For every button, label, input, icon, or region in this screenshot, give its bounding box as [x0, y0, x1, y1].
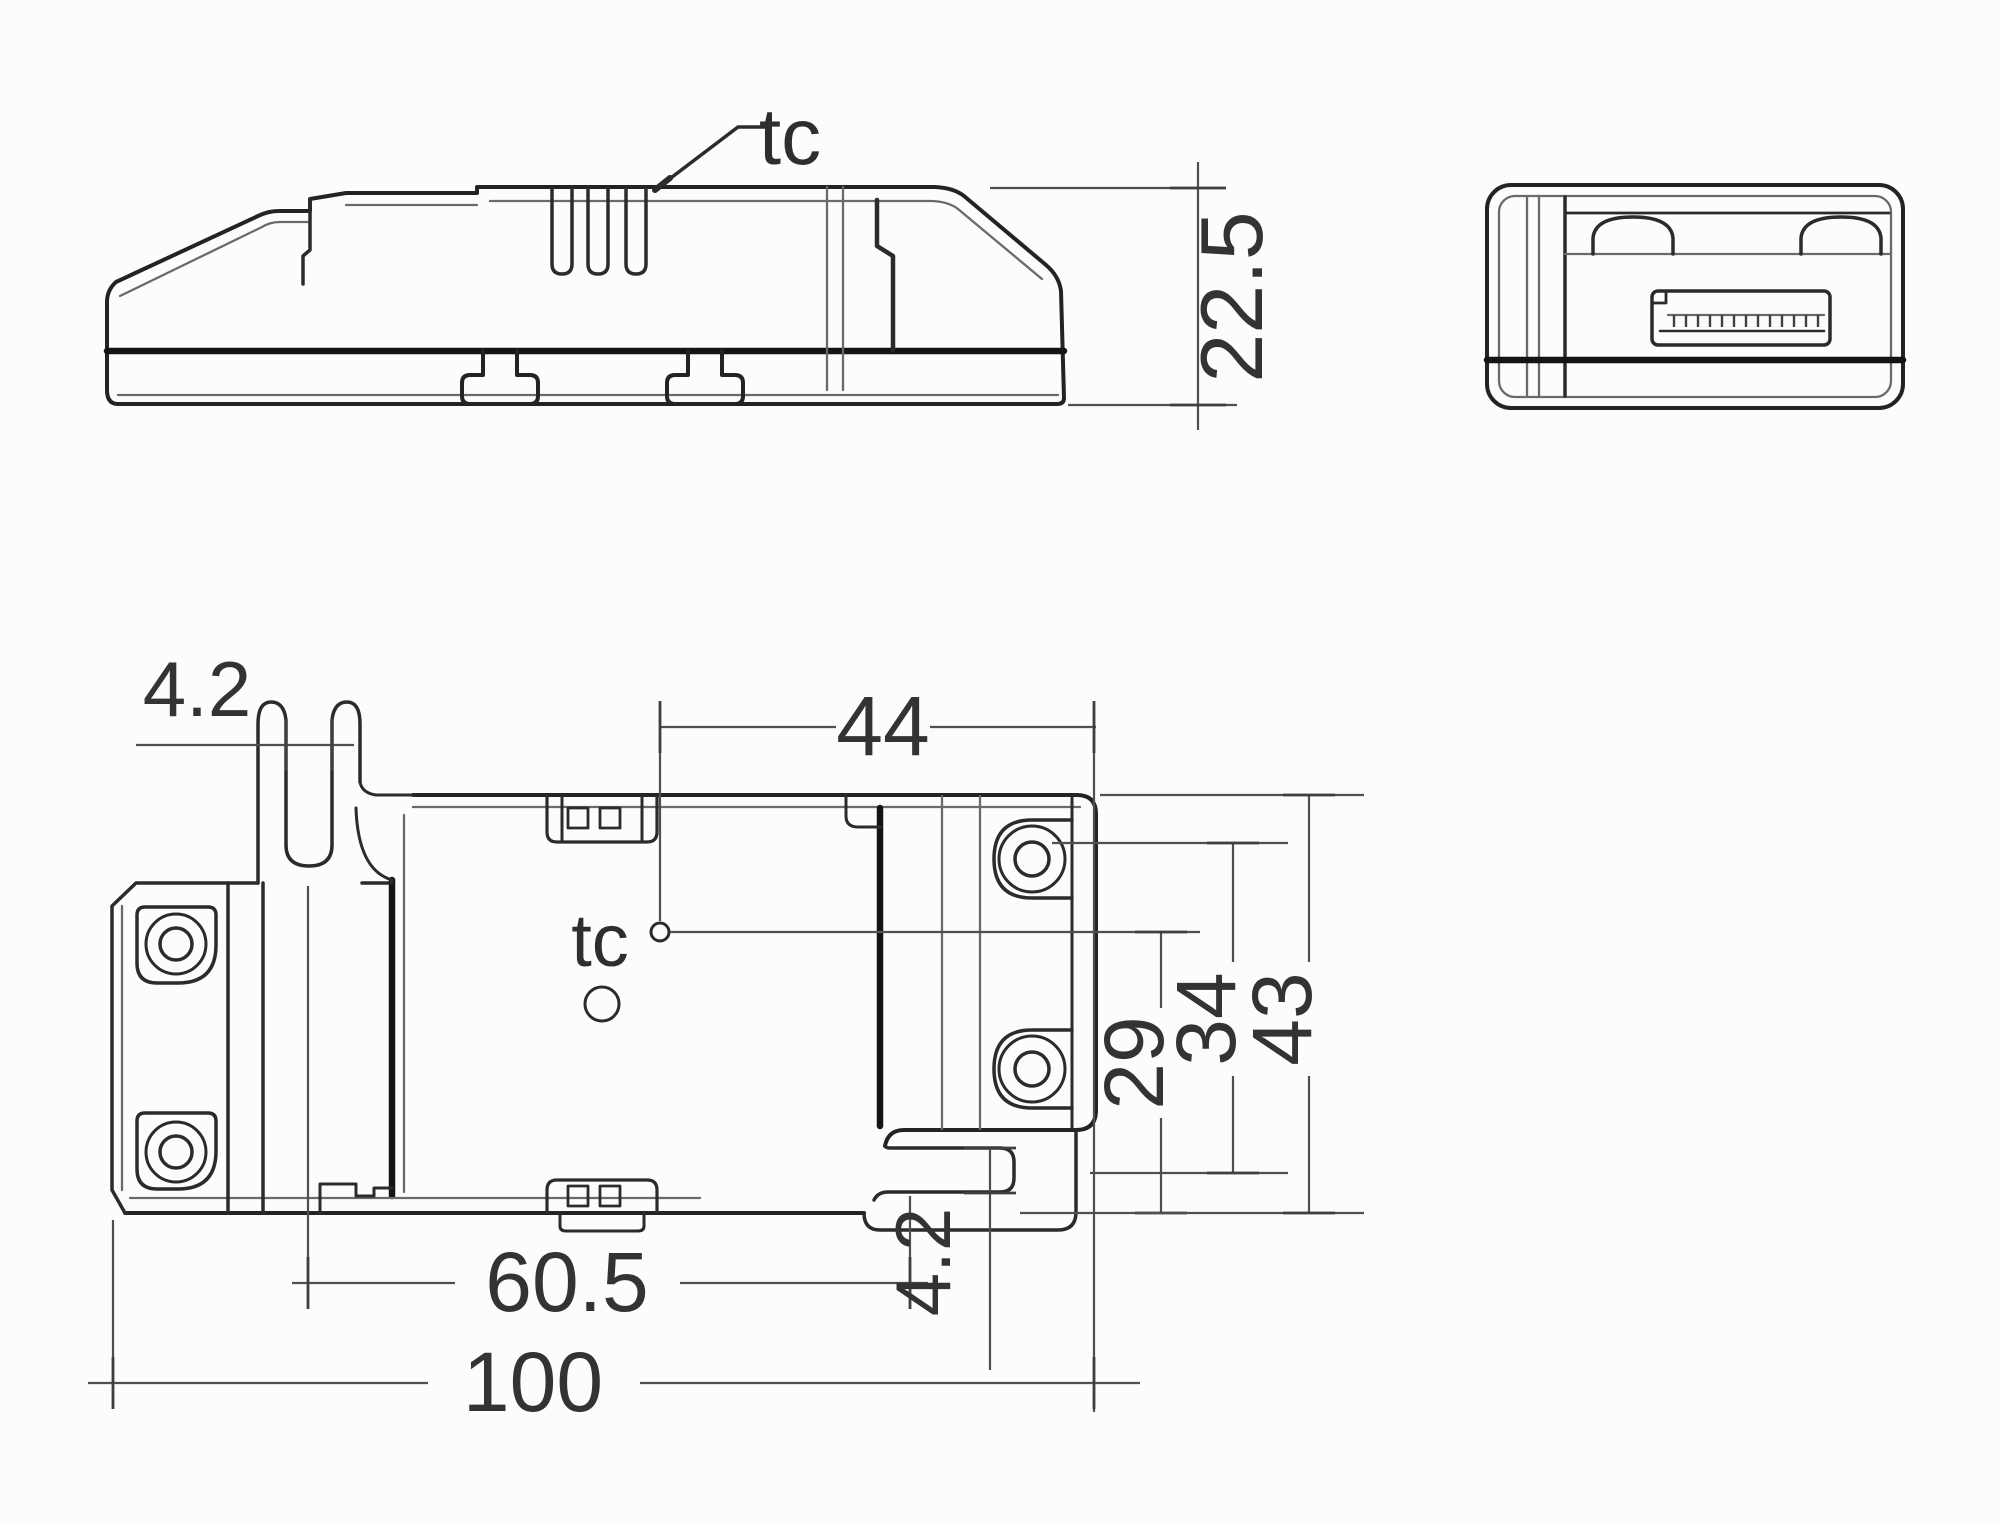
terminal-section: [112, 883, 392, 1213]
side-outline: [107, 187, 1064, 404]
end-inner-outline: [1499, 196, 1891, 397]
lug-rim: [146, 914, 206, 974]
mounting-hole: [160, 928, 192, 960]
mounting-hole: [1015, 842, 1049, 876]
dim-height-value: 22.5: [1182, 211, 1281, 382]
drawing-sheet: tc 22.5: [0, 0, 2000, 1522]
mounting-lug-top-left: [137, 907, 216, 983]
dim-value: 44: [836, 679, 929, 773]
cable-arch-left: [1593, 217, 1673, 254]
wiring-hole: [585, 987, 619, 1021]
dim-hook-4-2: 4.2: [879, 1148, 1016, 1370]
tc-leader-line: [655, 127, 770, 190]
cap-top-notch: [846, 795, 880, 827]
tc-label-side: tc: [759, 92, 821, 181]
terminal-teeth: [1674, 315, 1818, 327]
lug-rim: [146, 1122, 206, 1182]
dimension-drawing: tc 22.5: [0, 0, 2000, 1522]
right-cap-section: [846, 795, 1072, 1129]
dim-tc-y-29: 29: [670, 932, 1200, 1213]
side-view: tc 22.5: [107, 92, 1281, 430]
mounting-lug-top-right: [994, 820, 1072, 898]
terminal-section-walls: [228, 883, 263, 1213]
dim-value: 4.2: [143, 645, 251, 733]
mounting-hole: [160, 1136, 192, 1168]
end-left-walls: [1527, 196, 1539, 397]
mounting-lug-bottom-right: [994, 1030, 1072, 1108]
lug-rim: [999, 1036, 1065, 1102]
dim-value: 4.2: [879, 1208, 967, 1316]
dim-value: 43: [1235, 972, 1329, 1065]
dim-height-22-5: 22.5: [990, 162, 1281, 430]
dim-keyhole-4-2: 4.2: [136, 645, 354, 771]
mounting-hole: [1015, 1052, 1049, 1086]
side-internal-walls: [827, 187, 843, 390]
terminal-outline: [1652, 291, 1830, 345]
end-view: [1487, 185, 1903, 408]
plan-view: tc 4.2 44 29 34 43: [88, 645, 1364, 1429]
side-internal-step: [877, 200, 893, 350]
terminal-block: [1652, 291, 1830, 345]
cable-clip-top: [547, 796, 657, 842]
dim-value: 60.5: [485, 1235, 649, 1329]
keyhole-slot: [258, 702, 413, 883]
mounting-lug-bottom-left: [137, 1113, 216, 1189]
tc-label-plan: tc: [571, 899, 629, 982]
terminal-section-outline: [112, 883, 392, 1213]
cable-clip-bottom: [547, 1180, 657, 1231]
tc-point: [651, 923, 669, 941]
plan-inner-lines: [130, 807, 1080, 1198]
lug-rim: [999, 826, 1065, 892]
cable-arch-right: [1801, 217, 1881, 254]
cap-inner-walls: [942, 796, 980, 1129]
dim-value: 100: [463, 1335, 603, 1429]
